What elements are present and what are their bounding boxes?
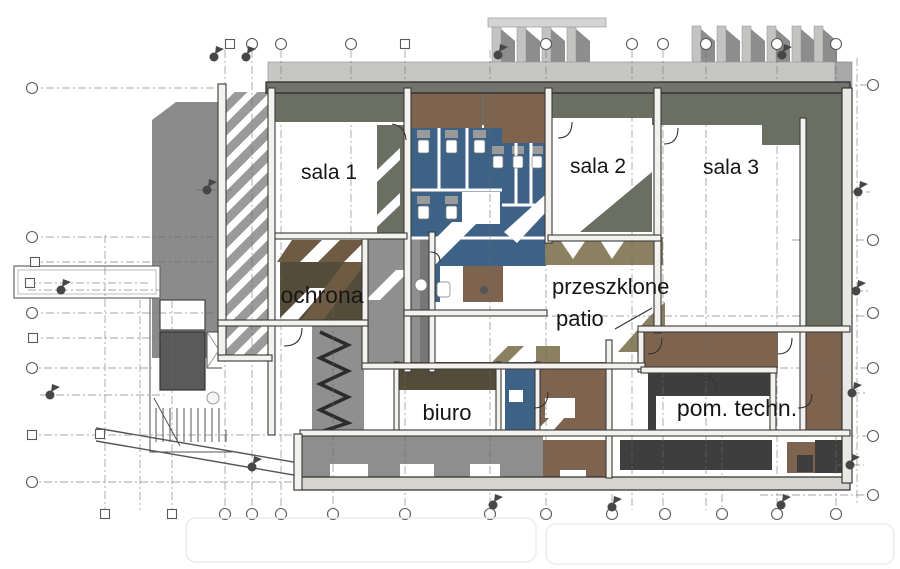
sink-icon <box>415 279 427 291</box>
section-marker-icon <box>494 51 503 60</box>
section-marker-flag <box>853 382 862 390</box>
grid-marker-circle <box>831 39 842 50</box>
corridor-stripes-west <box>226 92 268 358</box>
grid-marker-circle <box>541 509 552 520</box>
label-sala-2: sala 2 <box>570 155 626 178</box>
label-patio-line1: przeszklone <box>552 274 669 299</box>
grid-marker-circle <box>868 431 879 442</box>
section-marker-icon <box>848 389 857 398</box>
grid-marker-square <box>31 258 40 267</box>
section-marker-flag <box>851 454 860 462</box>
section-marker-flag <box>494 494 503 502</box>
grid-marker-circle <box>660 509 671 520</box>
wall-v7 <box>800 118 806 436</box>
wall-v13 <box>606 340 612 478</box>
wc-inner-room <box>462 192 500 224</box>
fin-shadow <box>751 29 765 64</box>
canopy-and-fins <box>268 18 852 92</box>
louver-fin-icon <box>814 26 823 64</box>
section-marker-flag <box>782 494 791 502</box>
fin-top-beam <box>488 18 606 27</box>
external-walkway <box>14 266 160 298</box>
fin-shadow <box>576 29 590 64</box>
canopy-band <box>268 62 848 82</box>
stair-room <box>160 300 205 330</box>
grid-marker-circle <box>27 308 38 319</box>
section-marker-icon <box>210 53 219 62</box>
wall-north-exterior <box>266 82 850 93</box>
grid-marker-circle <box>27 477 38 488</box>
grid-marker-circle <box>772 39 783 50</box>
section-marker-icon <box>846 461 855 470</box>
section-marker-flag <box>215 46 224 54</box>
label-patio-line2: patio <box>556 306 604 331</box>
wall-h4 <box>404 310 547 316</box>
grid-marker-circle <box>868 80 879 91</box>
grid-marker-circle <box>27 232 38 243</box>
pom-brown-column <box>802 328 848 434</box>
label-pom-techn: pom. techn. <box>677 395 797 421</box>
section-marker-icon <box>57 286 66 295</box>
south-window-a <box>330 464 368 477</box>
grid-marker-circle <box>346 39 357 50</box>
wall-west-annex <box>218 84 226 360</box>
grid-marker-circle <box>627 39 638 50</box>
wall-sw-corner <box>294 434 302 490</box>
wc-block-brown-a <box>408 92 482 128</box>
louver-fin-icon <box>517 26 526 64</box>
grid-marker-square <box>101 510 110 519</box>
grid-marker-circle <box>868 235 879 246</box>
wc-floor-drain <box>480 286 488 294</box>
louver-fin-icon <box>692 26 701 64</box>
grid-marker-square <box>28 431 37 440</box>
grid-marker-square <box>401 40 410 49</box>
grid-marker-circle <box>772 509 783 520</box>
floor-plan-drawing: sala 1 sala 2 sala 3 ochrona przeszklone… <box>0 0 900 569</box>
label-sala-3: sala 3 <box>703 156 759 179</box>
wall-v1 <box>268 88 275 435</box>
section-marker-icon <box>777 501 786 510</box>
section-marker-flag <box>253 456 262 464</box>
section-marker-flag <box>857 280 866 288</box>
grid-marker-square <box>168 510 177 519</box>
wall-h5 <box>638 326 850 332</box>
fin-shadow <box>726 29 740 64</box>
exterior-stairs <box>156 408 226 442</box>
floor-plan-page: sala 1 sala 2 sala 3 ochrona przeszklone… <box>0 0 900 569</box>
grid-marker-circle <box>868 363 879 374</box>
section-marker-icon <box>46 391 55 400</box>
louver-fin-icon <box>792 26 801 64</box>
elevator-shaft <box>160 332 205 390</box>
section-marker-icon <box>854 188 863 197</box>
fin-shadow <box>526 29 540 64</box>
section-marker-icon <box>852 287 861 296</box>
wall-v12 <box>535 362 540 433</box>
label-biuro: biuro <box>423 400 472 425</box>
grid-marker-square <box>29 334 38 343</box>
grid-marker-circle <box>831 509 842 520</box>
wall-v11 <box>496 362 501 433</box>
biuro-wc-white <box>509 390 523 402</box>
section-marker-flag <box>613 496 622 504</box>
grid-marker-circle <box>868 490 879 501</box>
section-marker-flag <box>859 181 868 189</box>
wall-south-exterior <box>294 477 850 490</box>
grid-marker-circle <box>27 83 38 94</box>
section-marker-icon <box>608 503 617 512</box>
grid-marker-square <box>96 430 105 439</box>
sheet-ghost-outlines <box>186 518 894 564</box>
grid-marker-square <box>26 279 35 288</box>
sala-3-shade-step <box>762 125 802 145</box>
south-east-dark-corner <box>815 440 845 473</box>
grid-marker-circle <box>717 509 728 520</box>
grid-marker-circle <box>27 363 38 374</box>
wall-h8 <box>300 430 850 436</box>
south-east-dark-small <box>797 455 813 472</box>
grid-marker-circle <box>276 39 287 50</box>
wc-blue-d <box>460 240 546 266</box>
grid-marker-circle <box>868 308 879 319</box>
label-sala-1: sala 1 <box>301 161 357 184</box>
south-dark-band <box>620 440 772 470</box>
section-marker-icon <box>489 501 498 510</box>
site-column-circle <box>207 392 219 404</box>
wc-brown-bottom <box>463 266 503 302</box>
wall-h2 <box>548 235 661 241</box>
grid-marker-circle <box>541 39 552 50</box>
wall-h9 <box>218 355 272 361</box>
fin-shadow <box>551 29 565 64</box>
section-marker-flag <box>51 384 60 392</box>
wall-v2 <box>404 88 411 372</box>
section-marker-icon <box>242 53 251 62</box>
wall-h7 <box>641 367 777 373</box>
wall-h1 <box>275 233 407 239</box>
louver-fin-icon <box>567 26 576 64</box>
section-marker-icon <box>778 51 787 60</box>
grid-marker-square <box>226 40 235 49</box>
grid-marker-circle <box>701 39 712 50</box>
label-ochrona: ochrona <box>280 282 363 308</box>
grid-marker-circle <box>658 39 669 50</box>
wall-v10 <box>394 362 399 433</box>
louver-fin-icon <box>717 26 726 64</box>
wall-h6 <box>362 363 645 369</box>
louver-fin-icon <box>742 26 751 64</box>
wall-v4 <box>545 88 552 243</box>
wall-east-exterior <box>842 88 852 483</box>
section-marker-icon <box>248 463 257 472</box>
wall-h3 <box>218 320 368 326</box>
section-marker-icon <box>203 186 212 195</box>
south-window-c <box>470 464 500 477</box>
fin-shadow <box>801 29 815 64</box>
